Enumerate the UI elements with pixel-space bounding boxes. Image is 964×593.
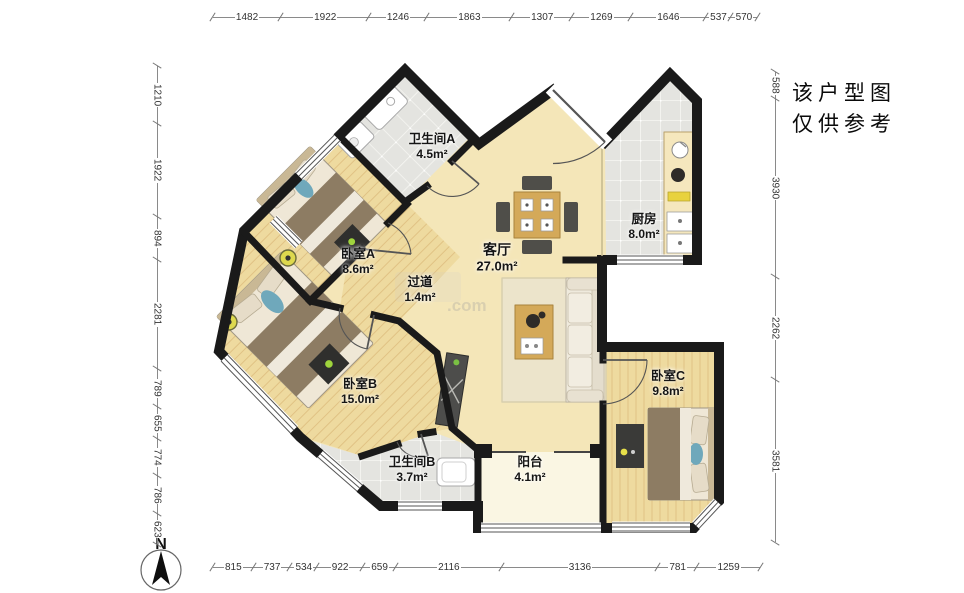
disclaimer-line1: 该户型图 <box>792 78 962 109</box>
window <box>617 255 683 266</box>
dimension-segment: 1307 <box>512 8 572 26</box>
balcony-window <box>481 523 601 534</box>
dimension-segment: 894 <box>148 217 166 260</box>
dimension-segment: 1210 <box>148 66 166 124</box>
room-label-bedroom-a: 卧室A 8.6m² <box>341 246 375 278</box>
dimension-segment: 2262 <box>766 277 784 380</box>
dimension-bottom: 815 737 534 922 659 2116 3136 781 1259 <box>213 558 760 576</box>
dimension-segment: 1646 <box>631 8 707 26</box>
dimension-top: 1482 1922 1246 1863 1307 1269 1646 537 5… <box>213 8 757 26</box>
dimension-right: 588 3930 2262 3581 <box>766 72 784 542</box>
dimension-segment: 781 <box>658 558 697 576</box>
dimension-segment: 655 <box>148 407 166 439</box>
dimension-segment: 623 <box>148 514 166 544</box>
dimension-segment: 1259 <box>697 558 760 576</box>
dimension-segment: 786 <box>148 476 166 514</box>
dimension-segment: 3930 <box>766 99 784 277</box>
dimension-segment: 2281 <box>148 260 166 370</box>
bed-c-icon <box>648 408 716 500</box>
bay-window <box>612 522 690 533</box>
dimension-segment: 789 <box>148 369 166 407</box>
dimension-segment: 570 <box>731 8 757 26</box>
dimension-segment: 922 <box>317 558 363 576</box>
dimension-segment: 3136 <box>502 558 659 576</box>
dimension-segment: 737 <box>254 558 291 576</box>
room-label-living-room: 客厅 27.0m² <box>476 240 517 275</box>
dimension-segment: 815 <box>213 558 254 576</box>
dimension-segment: 534 <box>290 558 317 576</box>
dimension-segment: 537 <box>706 8 731 26</box>
room-label-bedroom-c: 卧室C 9.8m² <box>651 368 685 400</box>
room-label-hallway: 过道 1.4m² <box>404 274 435 306</box>
room-label-bathroom-a: 卫生间A 4.5m² <box>409 131 456 163</box>
coffee-table-icon <box>515 305 553 359</box>
dimension-segment: 588 <box>766 72 784 99</box>
dimension-segment: 1922 <box>281 8 369 26</box>
floor-plan-canvas: N .com 卫生间A 4.5m² 卧室A 8.6m² 过道 1.4m² 客厅 … <box>0 0 964 593</box>
north-compass: N <box>141 536 181 590</box>
dimension-segment: 1269 <box>572 8 630 26</box>
dimension-segment: 659 <box>363 558 396 576</box>
bathtub-icon <box>437 458 475 486</box>
window <box>398 501 442 512</box>
disclaimer-line2: 仅供参考 <box>792 109 962 140</box>
disclaimer-note: 该户型图 仅供参考 <box>792 78 962 140</box>
dimension-segment: 774 <box>148 439 166 476</box>
dimension-segment: 2116 <box>396 558 502 576</box>
dimension-segment: 3581 <box>766 380 784 542</box>
wardrobe-icon <box>616 424 644 468</box>
dimension-segment: 1922 <box>148 124 166 216</box>
kitchen-counter-icon <box>664 132 696 258</box>
dimension-segment: 1482 <box>213 8 281 26</box>
dimension-segment: 1863 <box>427 8 513 26</box>
room-label-balcony: 阳台 4.1m² <box>514 454 545 486</box>
room-label-bathroom-b: 卫生间B 3.7m² <box>389 454 436 486</box>
room-label-bedroom-b: 卧室B 15.0m² <box>341 376 379 408</box>
room-label-kitchen: 厨房 8.0m² <box>628 211 659 243</box>
dimension-segment: 1246 <box>369 8 426 26</box>
dimension-left: 1210 1922 894 2281 789 655 774 786 623 <box>148 66 166 544</box>
